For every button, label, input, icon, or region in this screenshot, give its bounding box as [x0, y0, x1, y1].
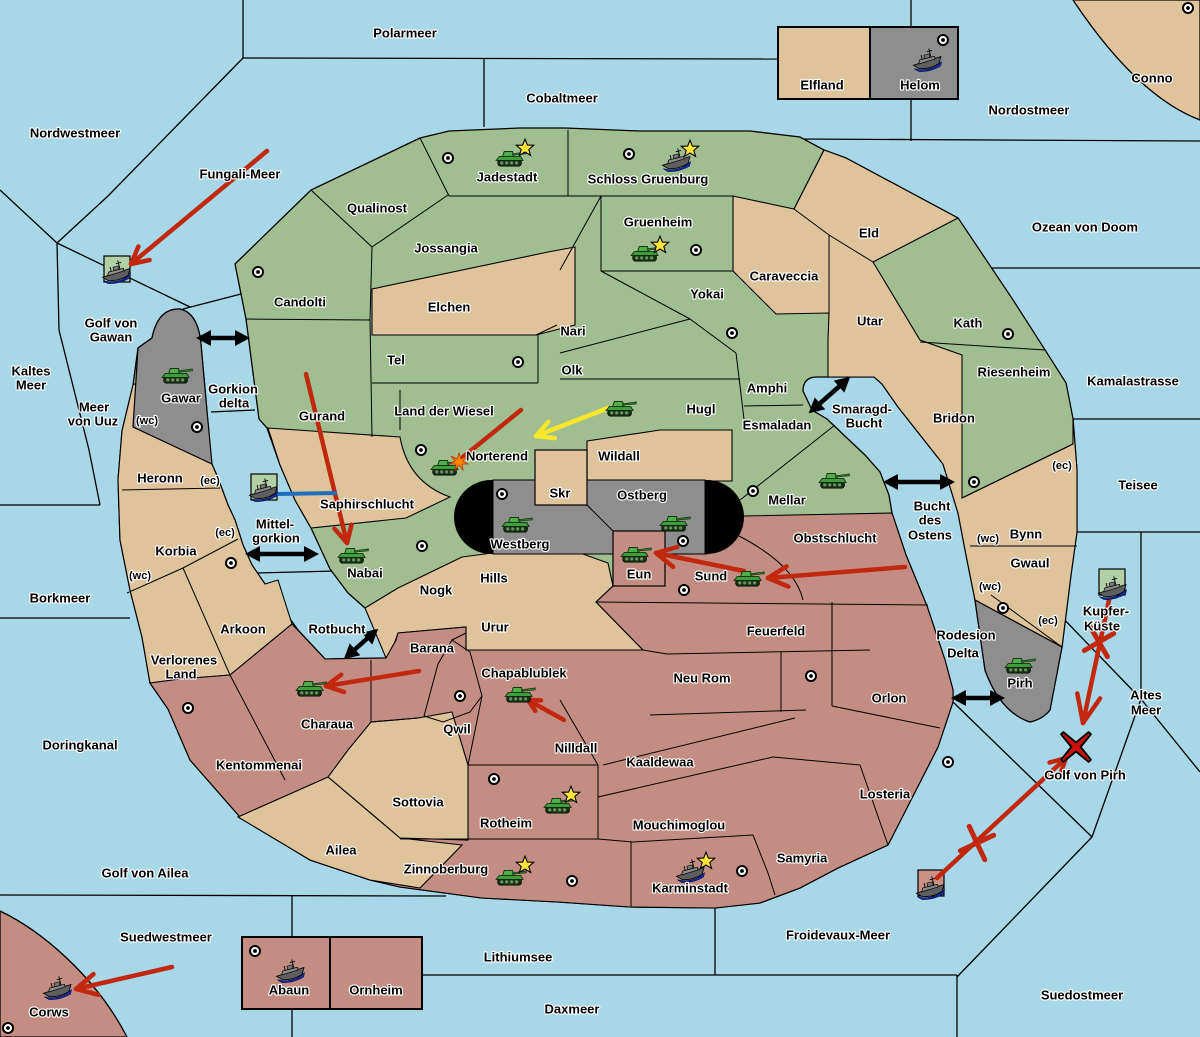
- svg-text:Nabai: Nabai: [347, 566, 382, 581]
- svg-text:Zinnoberburg: Zinnoberburg: [404, 862, 489, 877]
- svg-text:Gruenheim: Gruenheim: [624, 215, 693, 230]
- svg-text:Ostberg: Ostberg: [617, 488, 667, 503]
- svg-text:Helom: Helom: [900, 78, 940, 93]
- svg-text:Gurand: Gurand: [299, 409, 345, 424]
- svg-text:Meer: Meer: [16, 378, 46, 393]
- svg-text:Meer: Meer: [1131, 703, 1161, 718]
- svg-text:Froidevaux-Meer: Froidevaux-Meer: [786, 928, 890, 943]
- svg-text:Ostens: Ostens: [908, 528, 952, 543]
- svg-text:Kentommenai: Kentommenai: [216, 758, 302, 773]
- svg-text:Meer: Meer: [79, 400, 109, 415]
- svg-text:Kaaldewaa: Kaaldewaa: [626, 755, 694, 770]
- svg-text:Westberg: Westberg: [491, 537, 550, 552]
- svg-text:Küste: Küste: [1084, 619, 1120, 634]
- svg-text:Utar: Utar: [857, 314, 883, 329]
- svg-text:Golf von: Golf von: [85, 316, 138, 331]
- svg-text:Kupfer-: Kupfer-: [1083, 604, 1129, 619]
- svg-text:(wc): (wc): [136, 415, 158, 427]
- svg-text:Heronn: Heronn: [137, 471, 183, 486]
- svg-text:Golf von Ailea: Golf von Ailea: [102, 866, 190, 881]
- svg-text:Eld: Eld: [859, 226, 879, 241]
- svg-text:Borkmeer: Borkmeer: [30, 591, 91, 606]
- svg-text:Gorkion: Gorkion: [208, 382, 258, 397]
- svg-text:Caraveccia: Caraveccia: [750, 269, 819, 284]
- svg-text:Teisee: Teisee: [1118, 478, 1158, 493]
- svg-text:Delta: Delta: [947, 646, 980, 661]
- svg-text:des: des: [919, 513, 941, 528]
- svg-text:Charaua: Charaua: [301, 717, 354, 732]
- svg-text:Bucht: Bucht: [846, 416, 884, 431]
- svg-text:Candolti: Candolti: [274, 295, 326, 310]
- svg-text:Rotbucht: Rotbucht: [308, 622, 366, 637]
- svg-text:Abaun: Abaun: [269, 983, 310, 998]
- svg-text:Smaragd-: Smaragd-: [832, 402, 892, 417]
- svg-text:gorkion: gorkion: [252, 531, 300, 546]
- svg-text:Mittel-: Mittel-: [256, 517, 294, 532]
- svg-text:Hugl: Hugl: [687, 402, 716, 417]
- svg-text:Jadestadt: Jadestadt: [477, 170, 538, 185]
- svg-text:Sottovia: Sottovia: [392, 795, 444, 810]
- svg-text:Nogk: Nogk: [420, 583, 453, 598]
- svg-text:Karminstadt: Karminstadt: [652, 881, 729, 896]
- svg-text:Gawar: Gawar: [161, 391, 201, 406]
- svg-text:(ec): (ec): [1038, 615, 1058, 627]
- svg-text:Tel: Tel: [387, 353, 405, 368]
- svg-text:(ec): (ec): [1052, 460, 1072, 472]
- svg-text:Bucht: Bucht: [914, 499, 952, 514]
- svg-text:von Uuz: von Uuz: [68, 414, 119, 429]
- svg-text:Skr: Skr: [550, 486, 571, 501]
- svg-text:Kamalastrasse: Kamalastrasse: [1087, 374, 1179, 389]
- svg-text:Nordwestmeer: Nordwestmeer: [30, 126, 120, 141]
- svg-text:Qwil: Qwil: [443, 722, 470, 737]
- svg-text:Nordostmeer: Nordostmeer: [989, 103, 1070, 118]
- svg-text:Rotheim: Rotheim: [480, 816, 532, 831]
- svg-text:(ec): (ec): [200, 475, 220, 487]
- svg-text:Polarmeer: Polarmeer: [373, 26, 437, 41]
- svg-text:(wc): (wc): [977, 533, 999, 545]
- svg-text:Samyria: Samyria: [777, 851, 828, 866]
- svg-text:Corws: Corws: [29, 1005, 69, 1020]
- svg-text:(wc): (wc): [129, 570, 151, 582]
- svg-text:Neu Rom: Neu Rom: [673, 671, 730, 686]
- svg-text:Doringkanal: Doringkanal: [42, 738, 117, 753]
- svg-text:(ec): (ec): [215, 527, 235, 539]
- svg-text:Land der Wiesel: Land der Wiesel: [394, 404, 494, 419]
- svg-text:Obstschlucht: Obstschlucht: [793, 531, 877, 546]
- svg-text:Barana: Barana: [410, 641, 455, 656]
- svg-text:Nilldall: Nilldall: [555, 741, 598, 756]
- svg-text:Mouchimoglou: Mouchimoglou: [633, 818, 725, 833]
- svg-text:Jossangia: Jossangia: [414, 241, 478, 256]
- svg-text:Korbia: Korbia: [155, 544, 197, 559]
- svg-text:Wildall: Wildall: [598, 449, 640, 464]
- svg-text:Nari: Nari: [560, 324, 585, 339]
- svg-text:Mellar: Mellar: [768, 493, 806, 508]
- svg-text:Golf von Pirh: Golf von Pirh: [1044, 768, 1126, 783]
- svg-text:Fungali-Meer: Fungali-Meer: [200, 167, 281, 182]
- svg-text:Bridon: Bridon: [933, 411, 975, 426]
- svg-text:Ornheim: Ornheim: [349, 983, 402, 998]
- svg-text:Feuerfeld: Feuerfeld: [747, 624, 806, 639]
- svg-text:Urur: Urur: [481, 620, 508, 635]
- svg-text:Losteria: Losteria: [860, 787, 911, 802]
- svg-text:Eun: Eun: [627, 567, 652, 582]
- svg-text:Hills: Hills: [480, 571, 507, 586]
- svg-text:Pirh: Pirh: [1007, 676, 1032, 691]
- svg-text:Sund: Sund: [695, 569, 728, 584]
- svg-text:Cobaltmeer: Cobaltmeer: [526, 91, 598, 106]
- svg-text:Suedwestmeer: Suedwestmeer: [120, 930, 212, 945]
- svg-text:(wc): (wc): [979, 581, 1001, 593]
- svg-text:Altes: Altes: [1130, 688, 1162, 703]
- svg-text:Elfland: Elfland: [800, 78, 843, 93]
- svg-text:Schloss Gruenburg: Schloss Gruenburg: [588, 172, 709, 187]
- svg-text:Conno: Conno: [1131, 71, 1172, 86]
- svg-text:Norterend: Norterend: [466, 449, 528, 464]
- svg-text:Bynn: Bynn: [1010, 527, 1043, 542]
- svg-text:Ozean von Doom: Ozean von Doom: [1032, 220, 1138, 235]
- svg-text:Daxmeer: Daxmeer: [545, 1002, 600, 1017]
- svg-text:Suedostmeer: Suedostmeer: [1041, 988, 1123, 1003]
- svg-text:Yokai: Yokai: [690, 287, 724, 302]
- svg-text:Chapablublek: Chapablublek: [481, 666, 567, 681]
- svg-text:Qualinost: Qualinost: [347, 201, 408, 216]
- svg-text:Olk: Olk: [562, 363, 584, 378]
- svg-text:Kaltes: Kaltes: [11, 364, 50, 379]
- svg-text:Saphirschlucht: Saphirschlucht: [320, 497, 415, 512]
- svg-text:delta: delta: [219, 396, 250, 411]
- svg-text:Elchen: Elchen: [428, 300, 471, 315]
- svg-text:Arkoon: Arkoon: [220, 622, 266, 637]
- svg-text:Riesenheim: Riesenheim: [978, 365, 1051, 380]
- svg-text:Esmaladan: Esmaladan: [743, 418, 812, 433]
- svg-text:Ailea: Ailea: [325, 843, 357, 858]
- svg-text:Verlorenes: Verlorenes: [151, 653, 218, 668]
- svg-text:Orlon: Orlon: [872, 691, 907, 706]
- svg-text:Amphi: Amphi: [747, 381, 787, 396]
- svg-text:Lithiumsee: Lithiumsee: [484, 950, 553, 965]
- svg-text:Land: Land: [165, 667, 196, 682]
- svg-text:Gawan: Gawan: [90, 330, 133, 345]
- svg-text:Kath: Kath: [954, 316, 983, 331]
- svg-text:Gwaul: Gwaul: [1010, 556, 1049, 571]
- svg-text:Rodesion: Rodesion: [936, 628, 995, 643]
